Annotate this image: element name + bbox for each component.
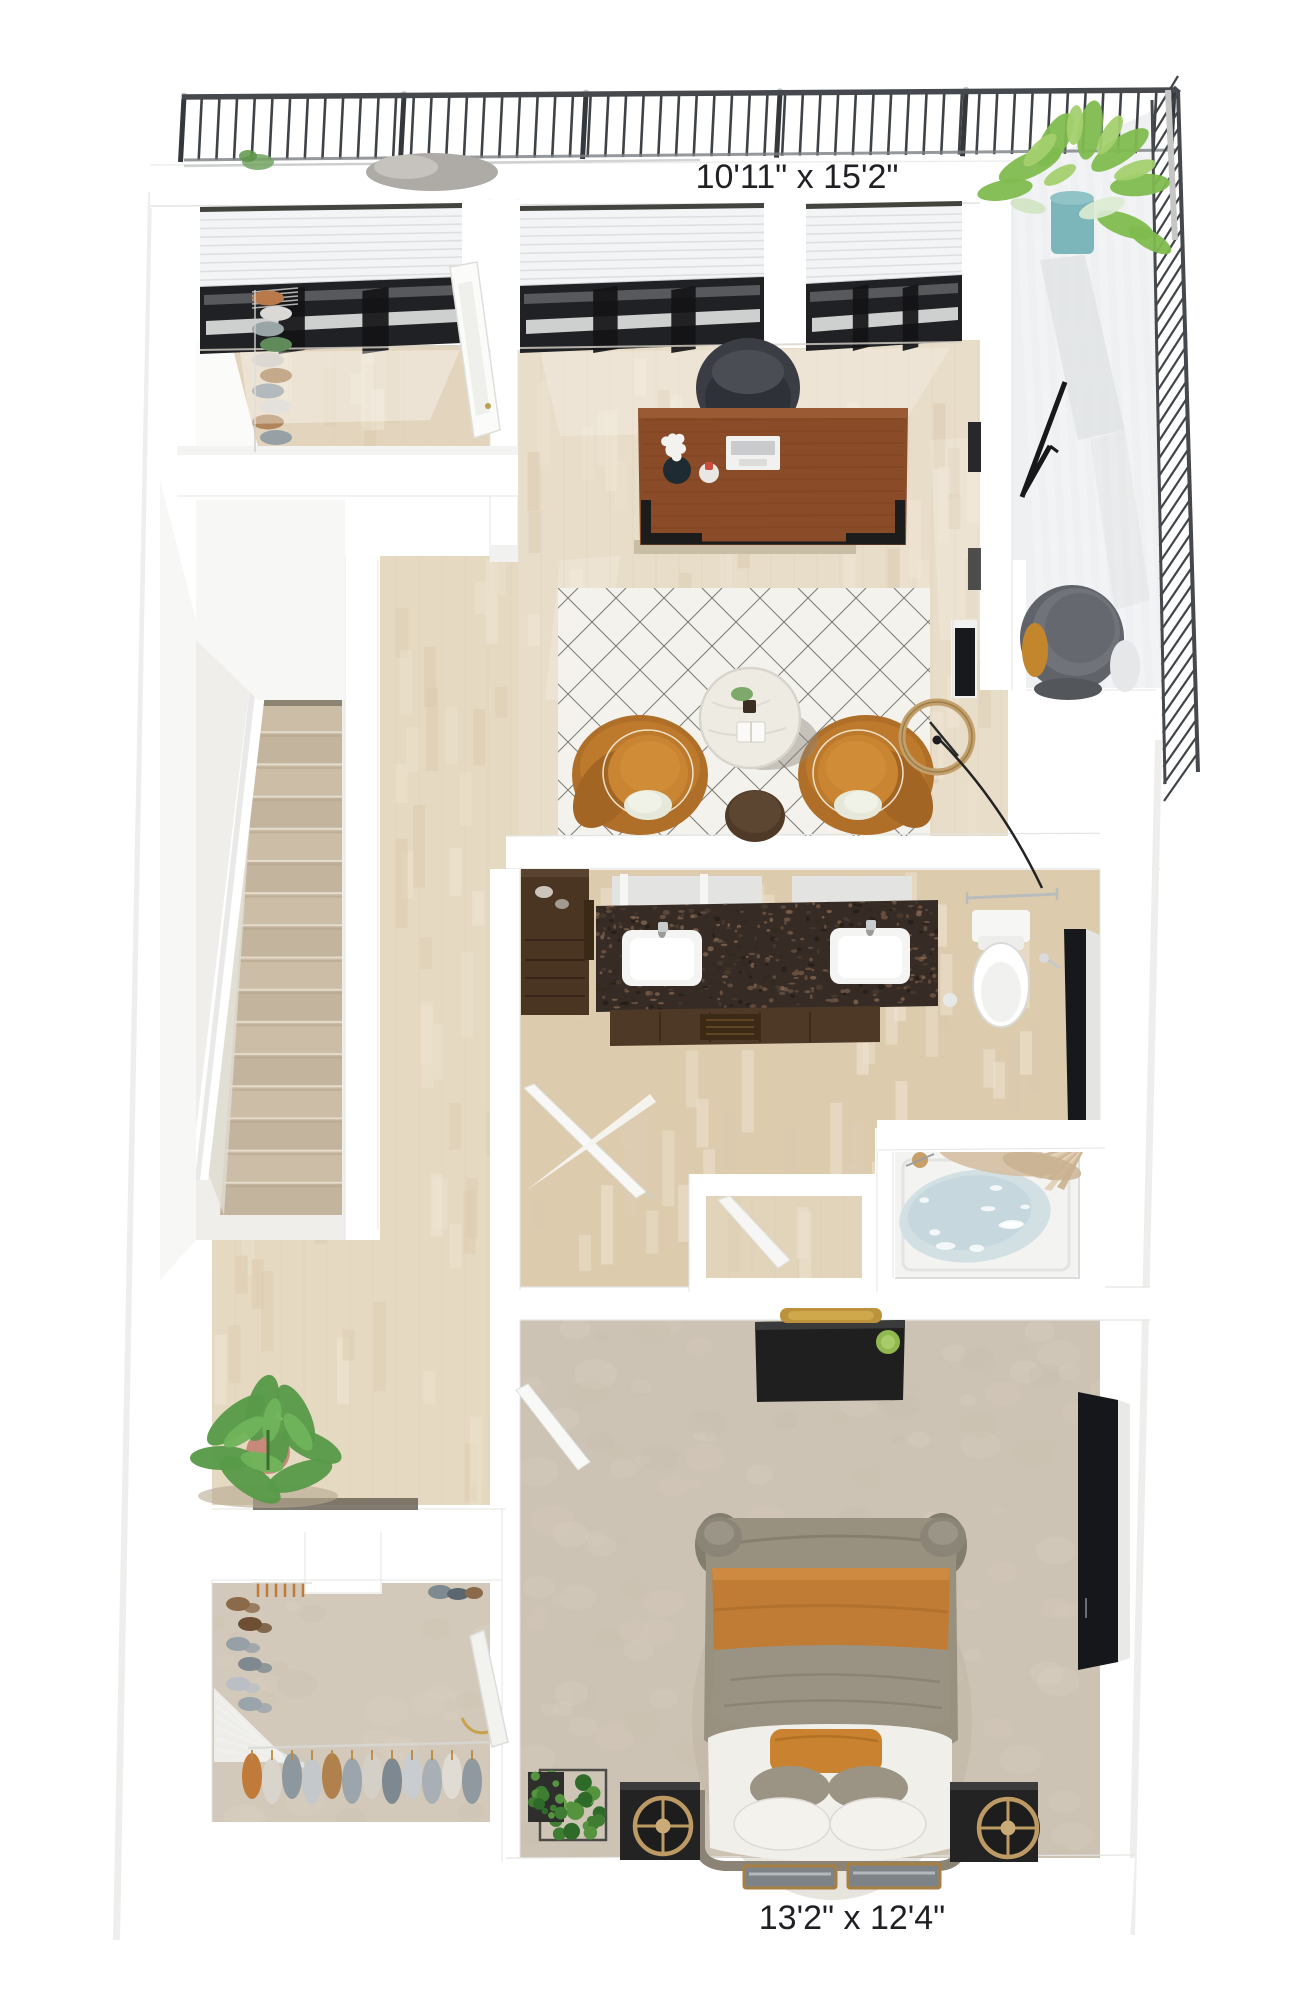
svg-text:10'11" x 15'2": 10'11" x 15'2"	[696, 158, 899, 196]
svg-text:13'2" x 12'4": 13'2" x 12'4"	[759, 1899, 945, 1937]
